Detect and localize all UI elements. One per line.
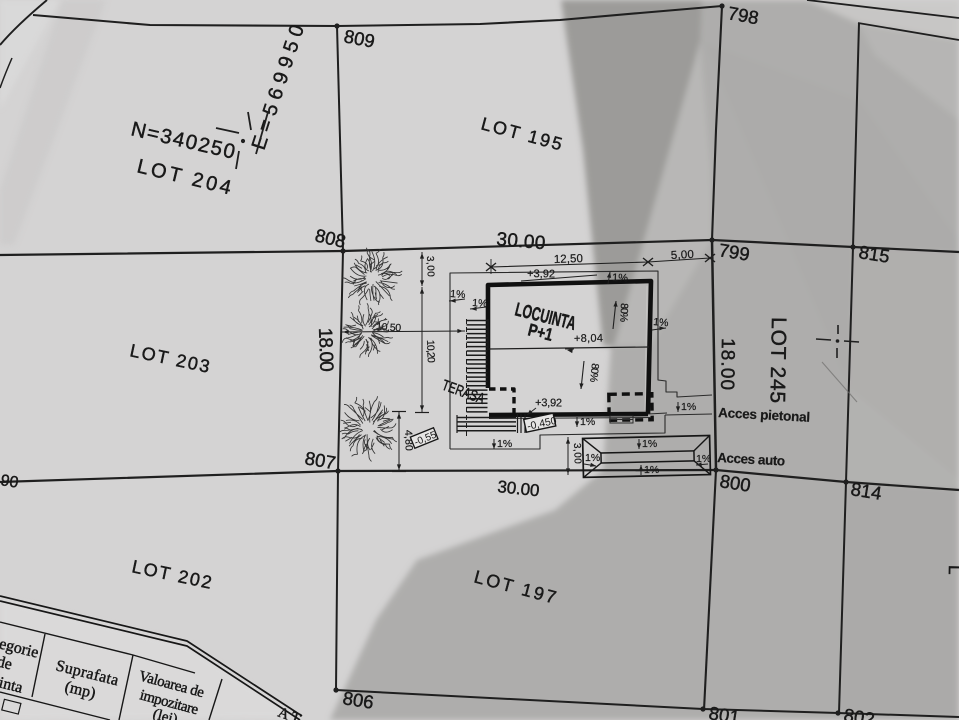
svg-text:80%: 80%	[617, 303, 630, 322]
svg-text:30.00: 30.00	[496, 229, 547, 254]
svg-text:1%: 1%	[580, 416, 595, 428]
svg-text:1%: 1%	[497, 438, 512, 450]
svg-text:1%: 1%	[696, 453, 711, 465]
svg-text:+8,04: +8,04	[574, 332, 603, 345]
svg-text:L: L	[945, 565, 959, 575]
svg-text:3,00: 3,00	[571, 443, 583, 465]
svg-text:10,20: 10,20	[424, 340, 437, 364]
svg-text:18.00: 18.00	[314, 327, 337, 372]
svg-text:LOT 245: LOT 245	[765, 317, 789, 403]
svg-text:1%: 1%	[681, 401, 696, 413]
svg-text:1%: 1%	[642, 438, 657, 450]
svg-text:+3,92: +3,92	[535, 397, 562, 409]
svg-text:80%: 80%	[587, 363, 601, 383]
svg-text:1%: 1%	[644, 464, 659, 476]
svg-text:1%: 1%	[612, 272, 629, 285]
svg-text:1%: 1%	[585, 452, 600, 464]
svg-text:5,00: 5,00	[671, 249, 695, 262]
svg-text:3,00: 3,00	[424, 256, 436, 278]
svg-text:12,50: 12,50	[554, 253, 583, 266]
svg-text:90: 90	[0, 472, 20, 492]
svg-text:18.00: 18.00	[716, 338, 738, 390]
